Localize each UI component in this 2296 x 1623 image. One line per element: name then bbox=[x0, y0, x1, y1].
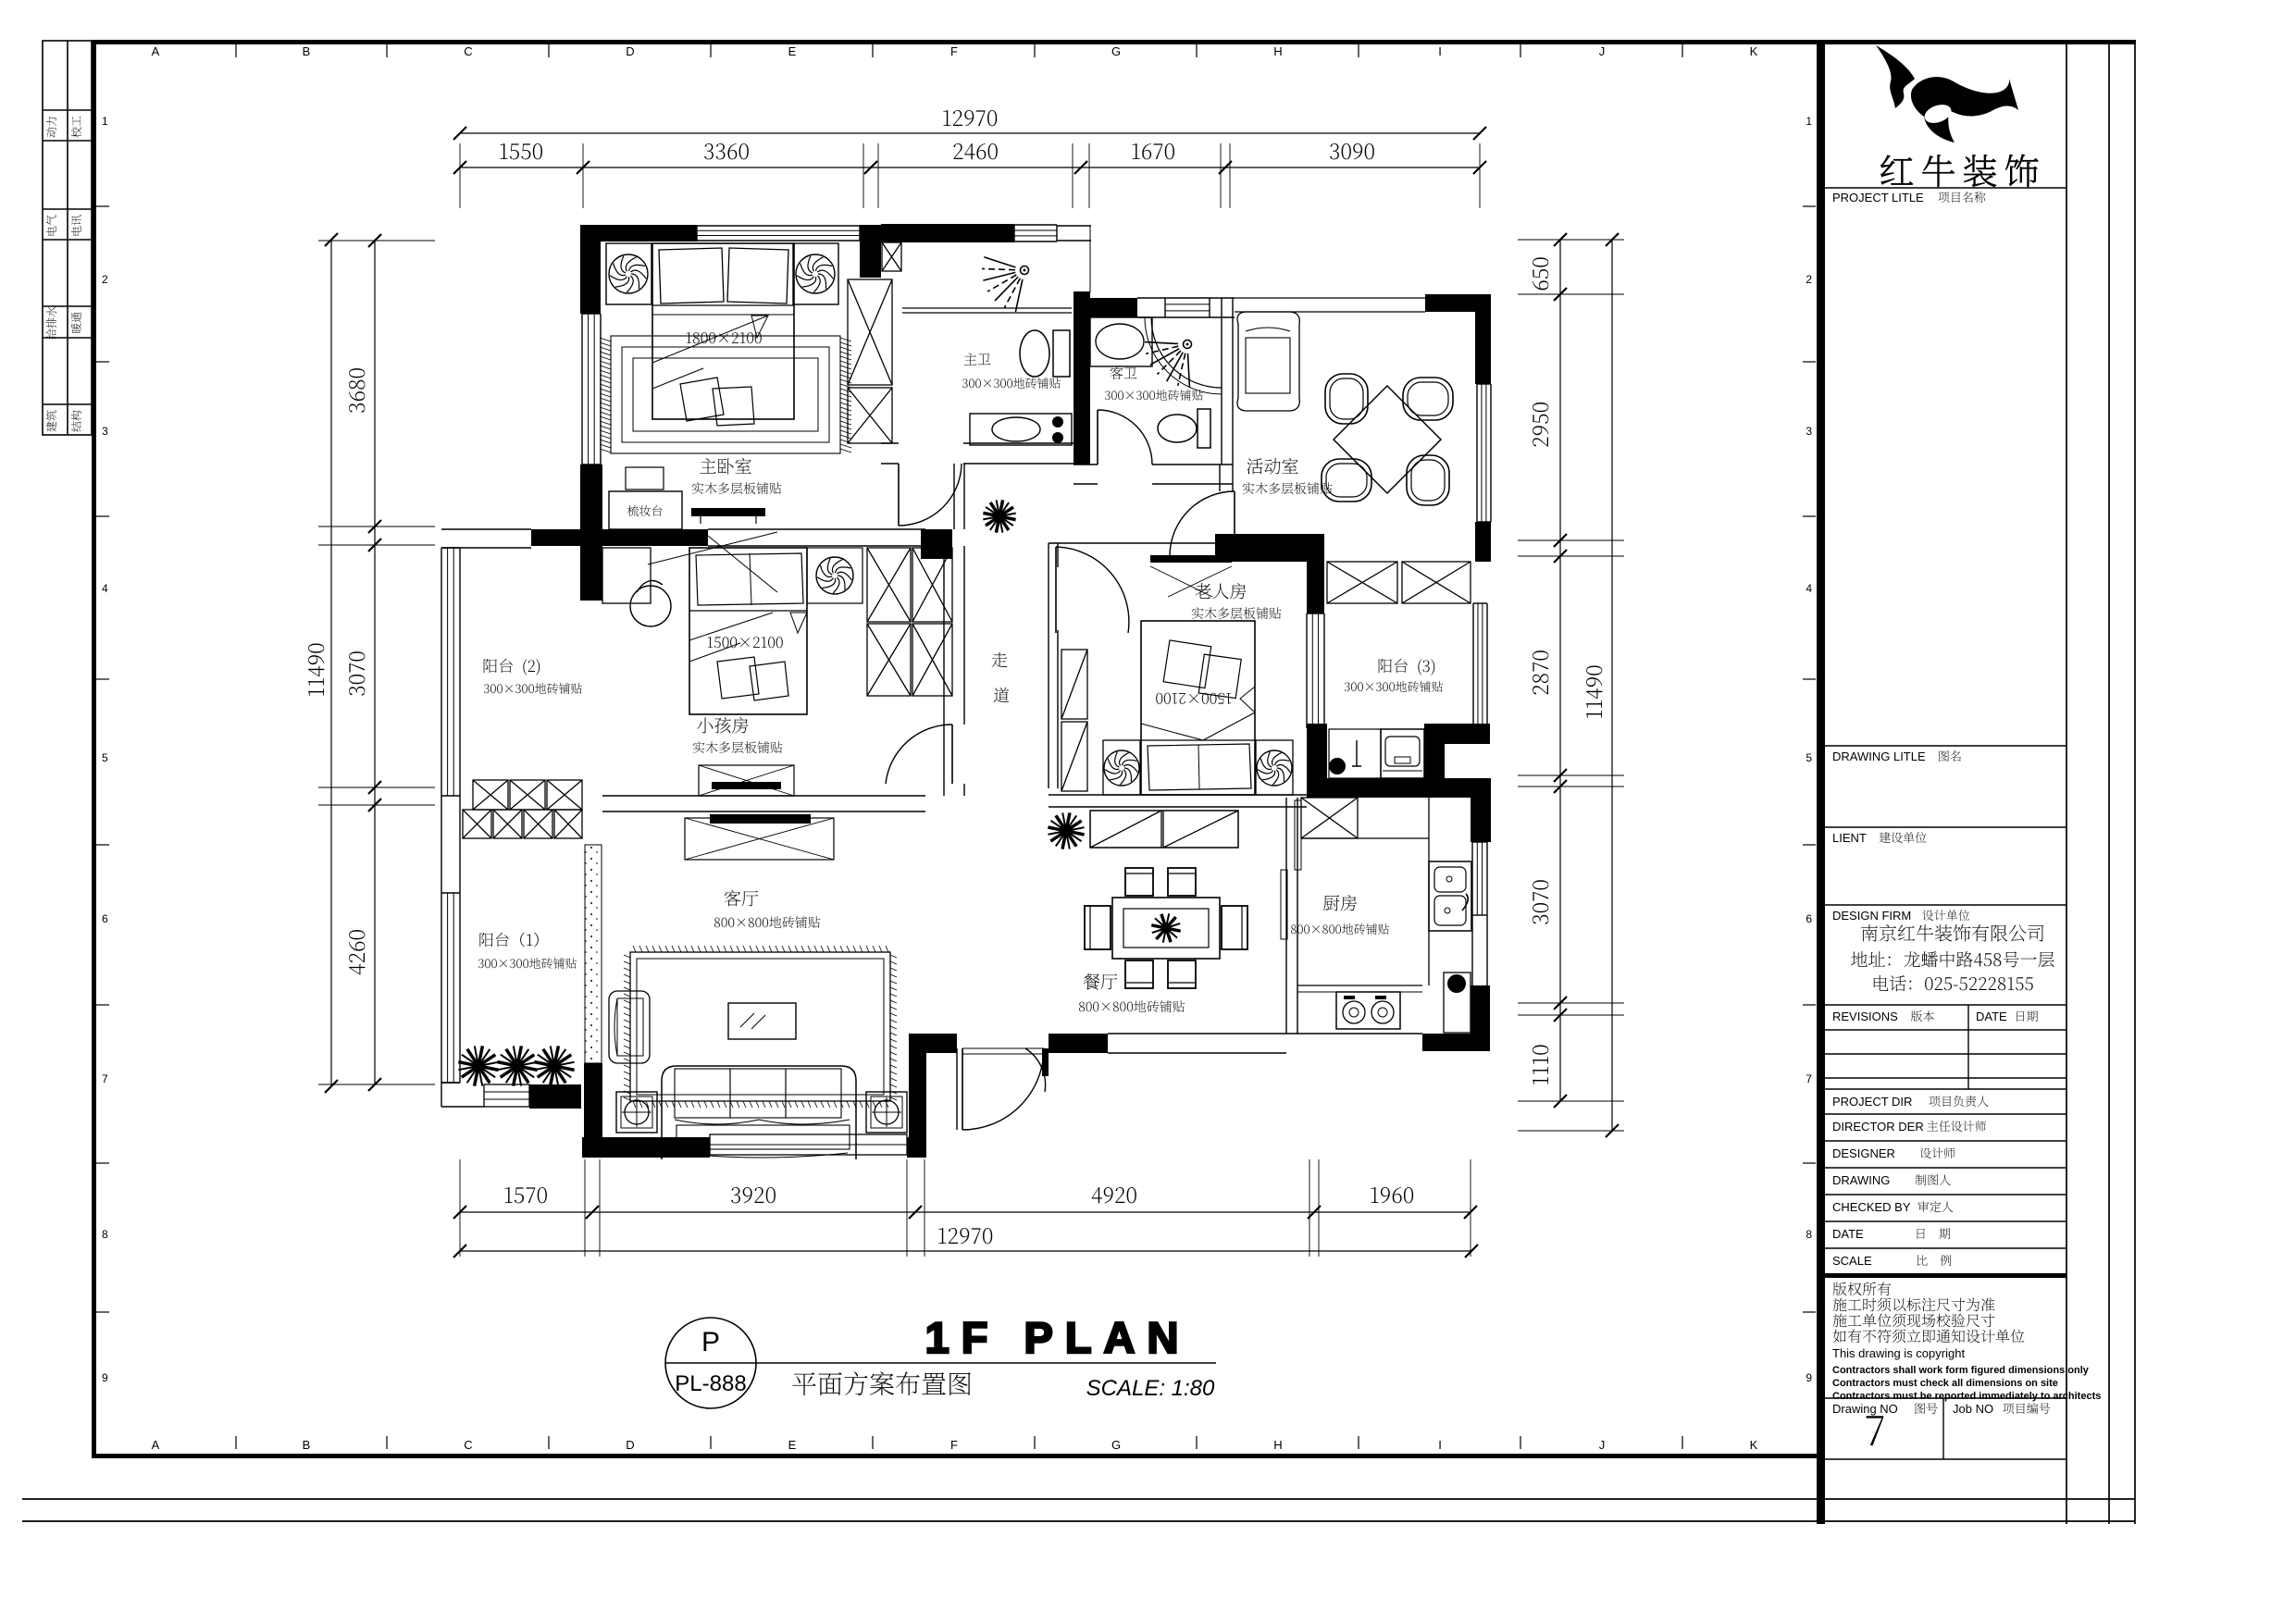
svg-text:F: F bbox=[950, 1438, 958, 1452]
svg-text:DATE: DATE bbox=[1976, 1010, 2007, 1023]
svg-text:1F PLAN: 1F PLAN bbox=[925, 1313, 1191, 1362]
svg-text:E: E bbox=[788, 44, 797, 58]
svg-text:D: D bbox=[626, 1438, 634, 1452]
svg-text:9: 9 bbox=[102, 1371, 108, 1384]
svg-text:DRAWING LITLE: DRAWING LITLE bbox=[1832, 750, 1926, 763]
svg-text:J: J bbox=[1599, 1438, 1606, 1452]
svg-text:7: 7 bbox=[102, 1072, 108, 1085]
svg-text:I: I bbox=[1438, 44, 1442, 58]
svg-text:SCALE: SCALE bbox=[1832, 1254, 1872, 1268]
svg-text:REVISIONS: REVISIONS bbox=[1832, 1010, 1898, 1023]
svg-text:2: 2 bbox=[102, 273, 108, 286]
svg-text:2: 2 bbox=[1806, 273, 1812, 286]
svg-text:8: 8 bbox=[102, 1228, 108, 1241]
svg-text:PROJECT LITLE: PROJECT LITLE bbox=[1832, 191, 1924, 204]
svg-text:I: I bbox=[1438, 1438, 1442, 1452]
svg-text:A: A bbox=[152, 1438, 160, 1452]
svg-text:E: E bbox=[788, 1438, 797, 1452]
svg-text:H: H bbox=[1273, 1438, 1282, 1452]
svg-text:4: 4 bbox=[1806, 582, 1812, 595]
svg-text:5: 5 bbox=[102, 751, 108, 764]
svg-text:B: B bbox=[303, 44, 311, 58]
svg-text:SCALE: 1:80: SCALE: 1:80 bbox=[1086, 1376, 1215, 1401]
svg-text:1: 1 bbox=[1806, 115, 1812, 128]
svg-text:D: D bbox=[626, 44, 634, 58]
svg-text:A: A bbox=[152, 44, 160, 58]
svg-text:6: 6 bbox=[1806, 912, 1812, 925]
svg-text:K: K bbox=[1750, 1438, 1758, 1452]
svg-text:Contractors must check all dim: Contractors must check all dimensions on… bbox=[1832, 1378, 2058, 1389]
svg-text:F: F bbox=[950, 44, 958, 58]
svg-text:9: 9 bbox=[1806, 1371, 1812, 1384]
svg-text:CHECKED BY: CHECKED BY bbox=[1832, 1200, 1911, 1214]
svg-text:6: 6 bbox=[102, 912, 108, 925]
svg-text:3: 3 bbox=[102, 425, 108, 438]
svg-text:DESIGN FIRM: DESIGN FIRM bbox=[1832, 909, 1911, 923]
svg-text:Contractors must be reported i: Contractors must be reported immediately… bbox=[1832, 1391, 2101, 1402]
svg-text:B: B bbox=[303, 1438, 311, 1452]
svg-text:Drawing NO: Drawing NO bbox=[1832, 1402, 1898, 1416]
svg-text:DIRECTOR DER: DIRECTOR DER bbox=[1832, 1120, 1924, 1134]
svg-text:DESIGNER: DESIGNER bbox=[1832, 1146, 1895, 1160]
svg-text:LIENT: LIENT bbox=[1832, 831, 1867, 845]
svg-text:5: 5 bbox=[1806, 751, 1812, 764]
svg-text:Job NO: Job NO bbox=[1953, 1402, 1993, 1416]
svg-text:4: 4 bbox=[102, 582, 108, 595]
svg-text:PROJECT DIR: PROJECT DIR bbox=[1832, 1095, 1912, 1109]
svg-text:K: K bbox=[1750, 44, 1758, 58]
svg-text:PL-888: PL-888 bbox=[675, 1371, 746, 1396]
svg-text:J: J bbox=[1599, 44, 1606, 58]
svg-text:G: G bbox=[1111, 44, 1121, 58]
svg-text:H: H bbox=[1273, 44, 1282, 58]
svg-text:7: 7 bbox=[1806, 1072, 1812, 1085]
svg-text:DATE: DATE bbox=[1832, 1227, 1864, 1241]
svg-text:C: C bbox=[464, 1438, 472, 1452]
svg-text:Contractors shall work form fi: Contractors shall work form figured dime… bbox=[1832, 1365, 2090, 1376]
svg-text:P: P bbox=[701, 1327, 720, 1357]
svg-text:8: 8 bbox=[1806, 1228, 1812, 1241]
svg-text:This drawing is copyright: This drawing is copyright bbox=[1832, 1346, 1965, 1360]
svg-text:C: C bbox=[464, 44, 472, 58]
svg-text:3: 3 bbox=[1806, 425, 1812, 438]
svg-text:DRAWING: DRAWING bbox=[1832, 1173, 1890, 1187]
svg-text:1: 1 bbox=[102, 115, 108, 128]
svg-text:G: G bbox=[1111, 1438, 1121, 1452]
